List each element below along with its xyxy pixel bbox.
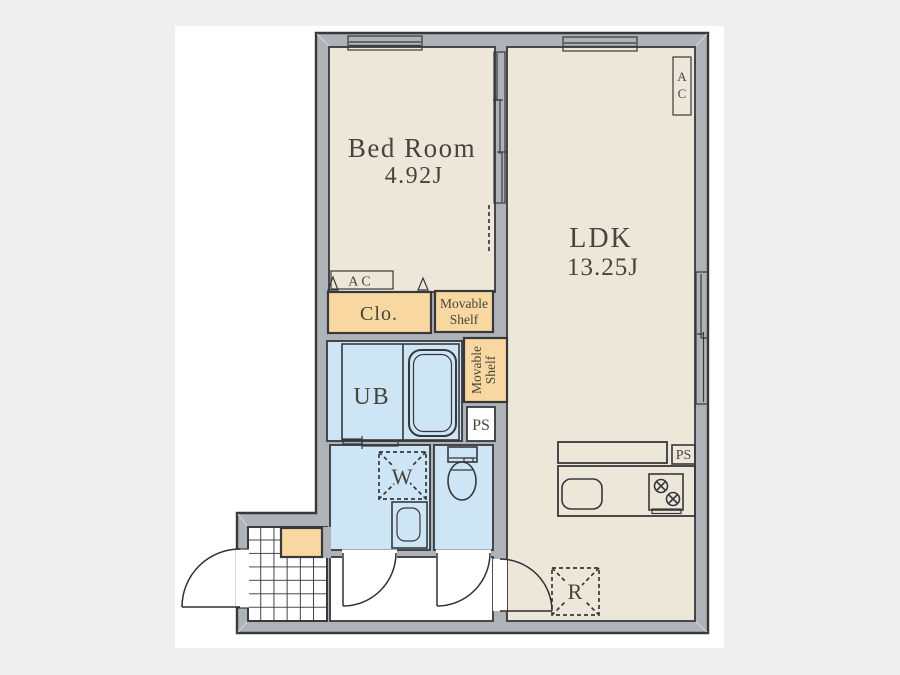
ldk-door-opening xyxy=(493,559,507,611)
ac-ldk-label-2: C xyxy=(678,86,687,101)
closet-label: Clo. xyxy=(360,303,398,325)
bedroom-name-label: Bed Room xyxy=(348,133,476,163)
bedroom-size-label: 4.92J xyxy=(385,163,444,189)
floor-plan-svg: Bed Room 4.92J LDK 13.25J Clo. UB Movabl… xyxy=(0,0,900,675)
pipe-space-bath-label: PS xyxy=(472,417,490,434)
refrigerator-label: R xyxy=(568,579,583,604)
wall-patch xyxy=(322,527,331,558)
floor-plan-stage: Bed Room 4.92J LDK 13.25J Clo. UB Movabl… xyxy=(0,0,900,675)
shoe-cabinet-box xyxy=(281,528,322,557)
hallway-floor xyxy=(330,557,493,621)
washer-label: W xyxy=(392,464,413,489)
svg-text:Shelf: Shelf xyxy=(483,355,498,384)
movable-shelf-upper-label-2: Shelf xyxy=(450,312,479,327)
ac-ldk-label-1: A xyxy=(677,69,687,84)
ldk-name-label: LDK xyxy=(569,223,633,254)
bathtub xyxy=(409,350,456,436)
unit-bath-label: UB xyxy=(353,384,390,410)
ac-bedroom-label: AC xyxy=(348,275,373,290)
ldk-floor xyxy=(507,47,695,621)
movable-shelf-upper-label-1: Movable xyxy=(440,296,488,311)
svg-text:Movable: Movable xyxy=(469,346,484,394)
pipe-space-kitchen-label: PS xyxy=(676,448,692,463)
ldk-size-label: 13.25J xyxy=(567,254,639,281)
entrance-door-opening xyxy=(236,549,249,608)
